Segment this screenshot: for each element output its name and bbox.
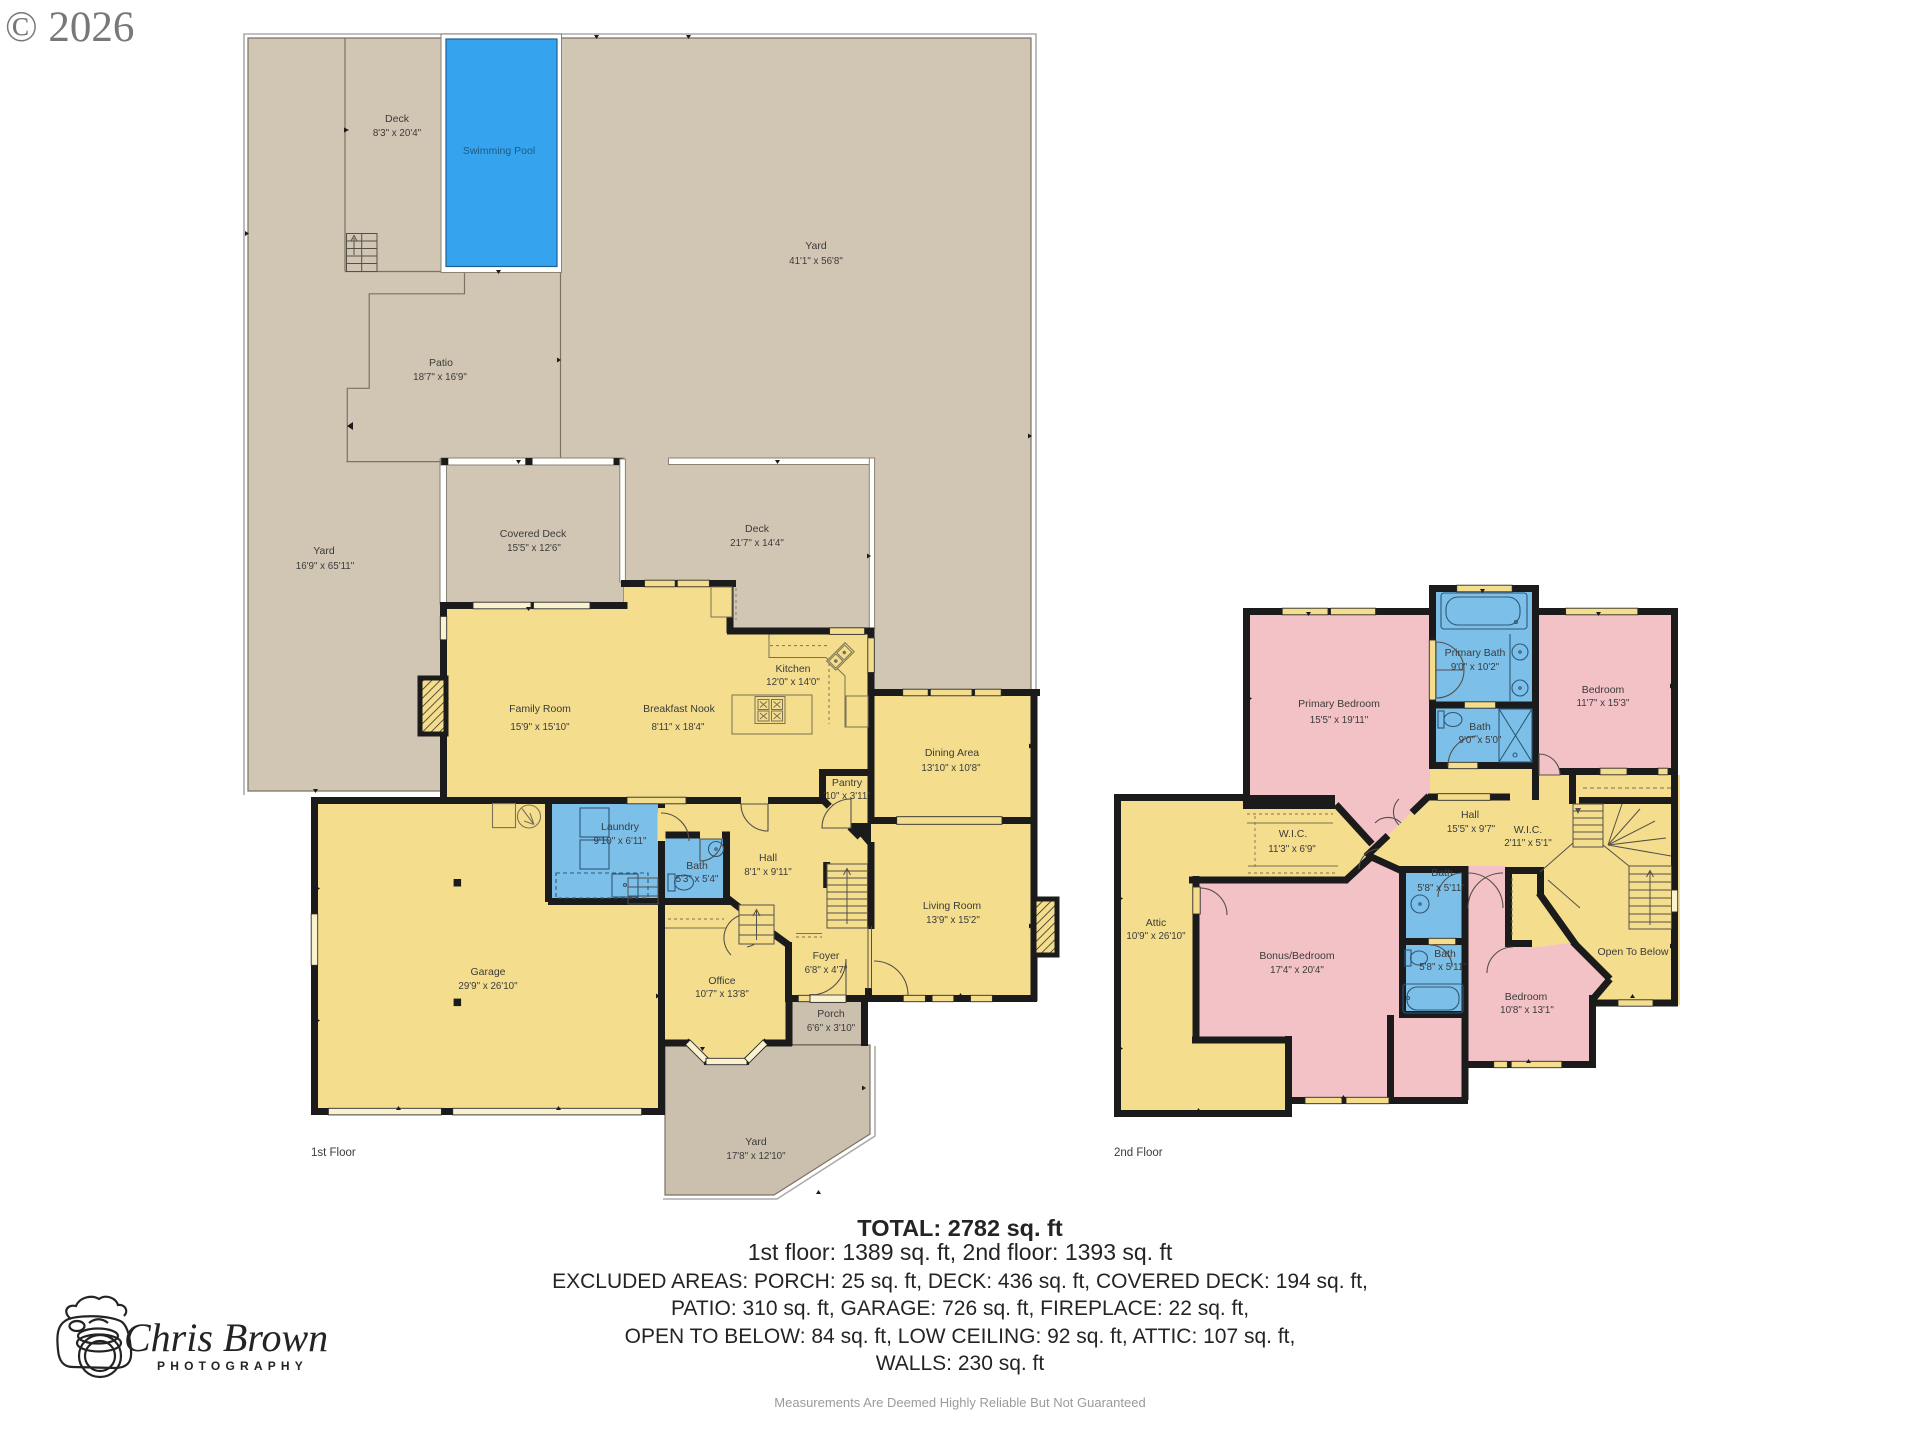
svg-text:9'0" x 10'2": 9'0" x 10'2" (1451, 662, 1500, 673)
svg-text:15'9" x 15'10": 15'9" x 15'10" (510, 722, 570, 733)
svg-text:11'7" x 15'3": 11'7" x 15'3" (1576, 698, 1630, 709)
svg-text:12'0" x 14'0": 12'0" x 14'0" (766, 677, 820, 688)
svg-text:Bonus/Bedroom: Bonus/Bedroom (1259, 950, 1335, 962)
svg-text:10'9" x 26'10": 10'9" x 26'10" (1126, 931, 1186, 942)
svg-text:© 2026: © 2026 (5, 4, 134, 51)
svg-text:Bath: Bath (1431, 867, 1453, 879)
svg-text:Open To Below: Open To Below (1597, 946, 1668, 958)
svg-text:8'1" x 9'11": 8'1" x 9'11" (744, 867, 792, 878)
svg-text:18'7" x 16'9": 18'7" x 16'9" (413, 372, 467, 383)
svg-text:Pantry: Pantry (832, 777, 863, 789)
svg-text:2'11" x 5'1": 2'11" x 5'1" (1504, 838, 1552, 849)
svg-text:8'11" x 18'4": 8'11" x 18'4" (651, 722, 705, 733)
svg-text:Foyer: Foyer (813, 950, 840, 962)
svg-text:10'7" x 13'8": 10'7" x 13'8" (695, 989, 749, 1000)
svg-text:Dining Area: Dining Area (925, 747, 979, 759)
svg-text:5'8" x 5'11": 5'8" x 5'11" (1417, 883, 1465, 894)
svg-text:Covered Deck: Covered Deck (500, 528, 567, 540)
svg-text:Yard: Yard (805, 240, 827, 252)
svg-text:Deck: Deck (745, 523, 770, 535)
svg-text:Bath: Bath (1469, 721, 1491, 733)
svg-text:Chris Brown: Chris Brown (124, 1315, 328, 1360)
svg-text:'10" x 3'11": '10" x 3'11" (823, 791, 871, 802)
svg-text:41'1" x 56'8": 41'1" x 56'8" (789, 256, 843, 267)
svg-text:Deck: Deck (385, 113, 410, 125)
svg-text:15'5" x 9'7": 15'5" x 9'7" (1447, 824, 1496, 835)
svg-text:Bedroom: Bedroom (1582, 684, 1625, 696)
svg-text:10'8" x 13'1": 10'8" x 13'1" (1500, 1005, 1554, 1016)
svg-text:1st Floor: 1st Floor (311, 1147, 356, 1159)
svg-text:21'7" x 14'4": 21'7" x 14'4" (730, 538, 784, 549)
svg-text:9'0" x 5'0": 9'0" x 5'0" (1459, 735, 1502, 746)
svg-text:Hall: Hall (1461, 809, 1479, 821)
svg-text:Swimming Pool: Swimming Pool (463, 145, 535, 157)
svg-text:Primary Bedroom: Primary Bedroom (1298, 698, 1380, 710)
svg-text:Primary Bath: Primary Bath (1445, 647, 1506, 659)
svg-text:1st floor: 1389 sq. ft, 2nd fl: 1st floor: 1389 sq. ft, 2nd floor: 1393 … (748, 1239, 1173, 1265)
svg-text:6'8" x 4'7": 6'8" x 4'7" (805, 965, 848, 976)
svg-text:Family Room: Family Room (509, 703, 571, 715)
svg-text:Kitchen: Kitchen (775, 663, 810, 675)
svg-text:Bedroom: Bedroom (1505, 991, 1548, 1003)
svg-text:11'3" x 6'9": 11'3" x 6'9" (1268, 844, 1316, 855)
svg-text:Living Room: Living Room (923, 900, 982, 912)
svg-text:17'8" x 12'10": 17'8" x 12'10" (726, 1151, 786, 1162)
svg-text:PHOTOGRAPHY: PHOTOGRAPHY (157, 1359, 308, 1373)
svg-text:5'3" x 5'4": 5'3" x 5'4" (676, 874, 719, 885)
svg-text:Office: Office (708, 975, 735, 987)
svg-text:Porch: Porch (817, 1008, 845, 1020)
svg-text:13'9" x 15'2": 13'9" x 15'2" (926, 915, 980, 926)
svg-text:WALLS: 230 sq. ft: WALLS: 230 sq. ft (876, 1352, 1045, 1375)
svg-text:PATIO: 310 sq. ft, GARAGE: 726: PATIO: 310 sq. ft, GARAGE: 726 sq. ft, F… (671, 1297, 1249, 1320)
svg-text:8'3" x 20'4": 8'3" x 20'4" (373, 128, 422, 139)
svg-text:29'9" x 26'10": 29'9" x 26'10" (458, 981, 518, 992)
svg-text:EXCLUDED AREAS: PORCH: 25 sq.: EXCLUDED AREAS: PORCH: 25 sq. ft, DECK: … (552, 1270, 1368, 1293)
svg-text:17'4" x 20'4": 17'4" x 20'4" (1270, 965, 1324, 976)
svg-text:13'10" x 10'8": 13'10" x 10'8" (921, 763, 981, 774)
svg-text:15'5" x 12'6": 15'5" x 12'6" (507, 543, 561, 554)
svg-text:9'10" x 6'11": 9'10" x 6'11" (593, 836, 647, 847)
svg-text:Bath: Bath (686, 860, 708, 872)
svg-text:Yard: Yard (745, 1136, 767, 1148)
svg-text:5'8" x 5'11": 5'8" x 5'11" (1419, 962, 1467, 973)
svg-text:2nd Floor: 2nd Floor (1114, 1147, 1163, 1159)
svg-text:W.I.C.: W.I.C. (1514, 824, 1543, 836)
svg-text:16'9" x 65'11": 16'9" x 65'11" (296, 561, 355, 572)
svg-text:Attic: Attic (1146, 917, 1166, 929)
svg-text:Yard: Yard (313, 545, 335, 557)
svg-text:Laundry: Laundry (601, 821, 640, 833)
svg-text:OPEN TO BELOW: 84 sq. ft, LOW: OPEN TO BELOW: 84 sq. ft, LOW CEILING: 9… (625, 1325, 1296, 1348)
svg-text:6'6" x 3'10": 6'6" x 3'10" (807, 1023, 856, 1034)
svg-text:W.I.C.: W.I.C. (1279, 828, 1308, 840)
svg-text:Measurements Are Deemed Highly: Measurements Are Deemed Highly Reliable … (774, 1395, 1145, 1410)
svg-text:TOTAL: 2782 sq. ft: TOTAL: 2782 sq. ft (857, 1215, 1063, 1241)
svg-text:Hall: Hall (759, 852, 777, 864)
svg-text:Patio: Patio (429, 357, 453, 369)
svg-text:15'5" x 19'11": 15'5" x 19'11" (1310, 715, 1369, 726)
svg-text:Garage: Garage (470, 966, 505, 978)
svg-text:Bath: Bath (1434, 948, 1456, 960)
svg-text:Breakfast Nook: Breakfast Nook (643, 703, 716, 715)
